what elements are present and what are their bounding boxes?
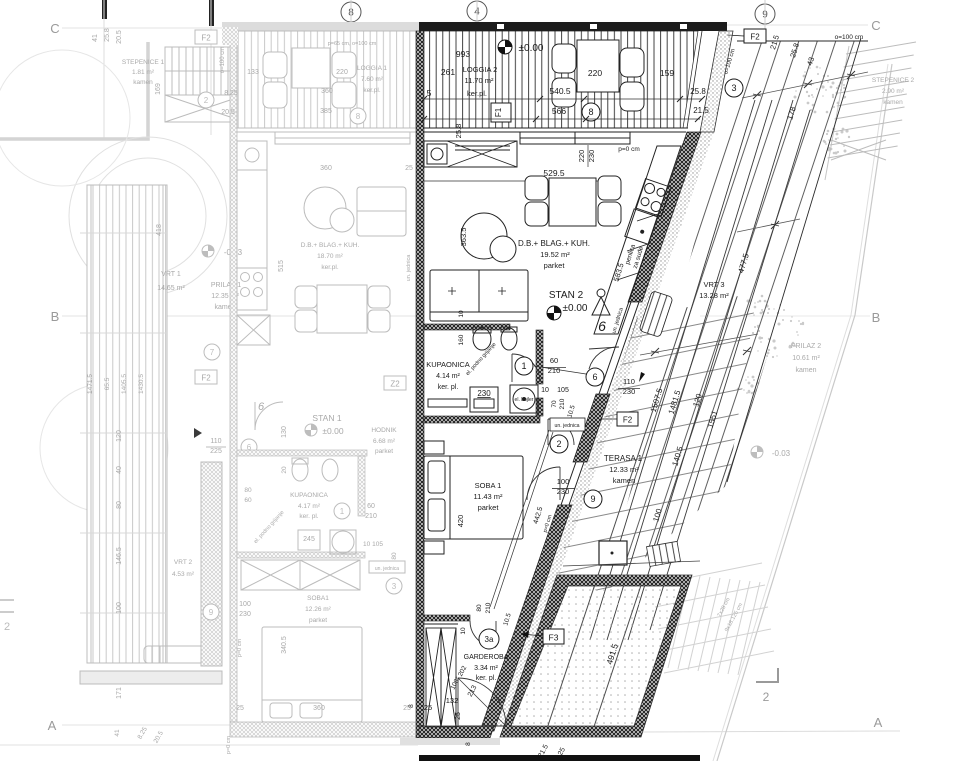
svg-text:225: 225: [210, 448, 222, 455]
svg-text:F1: F1: [494, 107, 503, 117]
svg-text:10: 10: [460, 627, 467, 635]
svg-text:STEPENICE 1: STEPENICE 1: [122, 59, 165, 66]
svg-text:kamen: kamen: [883, 99, 903, 106]
svg-text:1471.5: 1471.5: [87, 374, 94, 394]
svg-text:6: 6: [258, 401, 265, 413]
svg-text:GARDEROBA: GARDEROBA: [464, 654, 509, 661]
svg-text:360: 360: [321, 88, 333, 95]
svg-text:ker. pl.: ker. pl.: [476, 675, 497, 682]
svg-text:VRT 3: VRT 3: [704, 280, 725, 289]
svg-text:ker.pl.: ker.pl.: [321, 264, 339, 271]
svg-text:kamen: kamen: [133, 79, 153, 86]
svg-text:8: 8: [465, 742, 472, 746]
svg-text:p=0 cm: p=0 cm: [237, 638, 243, 657]
svg-text:±0.00: ±0.00: [563, 303, 588, 314]
svg-text:6.68 m²: 6.68 m²: [373, 438, 396, 445]
svg-text:un. jednica: un. jednica: [554, 423, 579, 429]
svg-text:parket: parket: [309, 617, 327, 624]
svg-text:1: 1: [340, 507, 345, 516]
svg-text:4.14 m²: 4.14 m²: [436, 373, 460, 380]
svg-text:993: 993: [456, 49, 470, 59]
svg-text:385: 385: [320, 108, 332, 115]
svg-text:ker. pl.: ker. pl.: [438, 384, 459, 391]
svg-text:o=100 cm: o=100 cm: [220, 47, 226, 74]
svg-text:20.5: 20.5: [116, 30, 123, 44]
svg-text:4.53 m²: 4.53 m²: [172, 571, 195, 578]
svg-text:SOBA 1: SOBA 1: [475, 481, 502, 490]
svg-text:10: 10: [458, 310, 465, 318]
svg-text:65.5: 65.5: [104, 377, 111, 390]
svg-text:159: 159: [660, 68, 674, 78]
svg-text:LOGGIA 1: LOGGIA 1: [357, 65, 387, 72]
svg-text:220: 220: [577, 150, 586, 163]
svg-text:ker.pl.: ker.pl.: [467, 89, 487, 98]
svg-text:540.5: 540.5: [549, 86, 571, 96]
svg-text:F2: F2: [201, 374, 211, 383]
svg-text:2: 2: [763, 690, 770, 704]
svg-text:9: 9: [209, 608, 214, 617]
svg-text:40: 40: [116, 466, 123, 474]
svg-text:12.33 m²: 12.33 m²: [609, 465, 639, 474]
svg-text:80: 80: [476, 604, 483, 612]
svg-text:13.28 m²: 13.28 m²: [699, 291, 729, 300]
svg-text:B: B: [872, 310, 881, 325]
svg-text:146.5: 146.5: [116, 547, 123, 565]
svg-text:60: 60: [244, 497, 252, 504]
svg-text:110: 110: [210, 438, 221, 445]
svg-text:19.52 m²: 19.52 m²: [540, 250, 570, 259]
svg-text:±0.00: ±0.00: [322, 426, 343, 436]
svg-text:360: 360: [313, 705, 325, 712]
svg-text:2: 2: [204, 96, 209, 105]
svg-text:12.26 m²: 12.26 m²: [305, 606, 331, 613]
svg-text:A: A: [48, 718, 57, 733]
svg-text:TERASA 1: TERASA 1: [604, 454, 643, 463]
svg-text:10 105: 10 105: [363, 541, 383, 548]
svg-text:A: A: [874, 715, 883, 730]
svg-text:1405.5: 1405.5: [121, 374, 128, 394]
svg-text:11.70 m²: 11.70 m²: [464, 76, 494, 85]
svg-text:parket: parket: [544, 261, 566, 270]
svg-text:2.90 m²: 2.90 m²: [882, 88, 905, 95]
svg-text:Z2: Z2: [390, 380, 400, 389]
svg-text:ker.pl.: ker.pl.: [363, 87, 381, 94]
svg-text:parket: parket: [478, 503, 500, 512]
svg-text:25: 25: [236, 705, 244, 712]
svg-text:60: 60: [367, 503, 375, 510]
svg-text:1.81 m²: 1.81 m²: [132, 69, 155, 76]
svg-text:10: 10: [541, 387, 549, 394]
svg-text:210: 210: [365, 513, 377, 520]
svg-text:D.B.+ BLAG.+ KUH.: D.B.+ BLAG.+ KUH.: [301, 242, 360, 249]
svg-text:B: B: [51, 309, 60, 324]
svg-text:110: 110: [623, 377, 635, 386]
svg-text:515: 515: [278, 260, 285, 272]
svg-text:6: 6: [592, 372, 597, 382]
svg-text:F2: F2: [623, 416, 633, 425]
svg-text:230: 230: [477, 389, 491, 398]
svg-text:100: 100: [557, 477, 570, 486]
svg-text:±0.00: ±0.00: [519, 43, 544, 54]
svg-text:7: 7: [210, 348, 215, 357]
svg-text:41: 41: [114, 729, 121, 737]
svg-text:171: 171: [116, 687, 123, 699]
svg-text:8: 8: [356, 112, 361, 121]
svg-text:STAN 2: STAN 2: [549, 290, 584, 301]
svg-text:un. jednica: un. jednica: [375, 566, 399, 572]
svg-text:STEPENICE 2: STEPENICE 2: [872, 77, 915, 84]
svg-text:C: C: [50, 21, 59, 36]
svg-text:100: 100: [239, 601, 251, 608]
svg-text:HODNIK: HODNIK: [371, 427, 397, 434]
svg-text:8: 8: [588, 107, 593, 117]
svg-text:230: 230: [239, 611, 251, 618]
svg-text:363.5: 363.5: [459, 228, 468, 247]
svg-text:1430.5: 1430.5: [138, 374, 145, 394]
svg-text:132: 132: [446, 696, 459, 705]
svg-text:25.8: 25.8: [454, 124, 463, 139]
svg-text:o=100 cm: o=100 cm: [835, 34, 864, 41]
svg-text:420: 420: [456, 515, 465, 528]
svg-text:kamen: kamen: [795, 367, 816, 374]
svg-text:kamen: kamen: [613, 476, 636, 485]
svg-text:340.5: 340.5: [281, 636, 288, 654]
svg-text:F2: F2: [750, 33, 760, 42]
svg-text:20.5: 20.5: [221, 109, 235, 116]
svg-text:9: 9: [590, 494, 595, 504]
svg-text:360: 360: [320, 165, 332, 172]
svg-text:1: 1: [521, 361, 526, 371]
svg-text:3: 3: [392, 582, 397, 591]
svg-text:p=0 cm: p=0 cm: [226, 735, 232, 754]
svg-text:25: 25: [405, 165, 413, 172]
svg-text:11.43 m²: 11.43 m²: [473, 492, 503, 501]
svg-text:3a: 3a: [485, 635, 494, 644]
svg-text:70: 70: [551, 400, 558, 408]
svg-text:14.65 m²: 14.65 m²: [157, 285, 185, 292]
svg-text:parket: parket: [375, 448, 393, 455]
svg-text:6: 6: [598, 318, 606, 334]
svg-text:80: 80: [244, 487, 252, 494]
svg-text:18.70 m²: 18.70 m²: [317, 253, 343, 260]
svg-text:220: 220: [588, 68, 602, 78]
svg-text:25: 25: [455, 712, 462, 720]
svg-text:25.8: 25.8: [690, 87, 706, 96]
svg-text:VRT 2: VRT 2: [174, 559, 193, 566]
svg-text:p=0 cm: p=0 cm: [618, 146, 640, 153]
svg-text:261: 261: [441, 67, 455, 77]
svg-text:130: 130: [281, 426, 288, 438]
svg-text:169: 169: [155, 83, 162, 95]
svg-text:25.8: 25.8: [104, 28, 111, 42]
svg-text:SOBA1: SOBA1: [307, 595, 329, 602]
svg-text:3.34 m²: 3.34 m²: [474, 665, 498, 672]
svg-text:KUPAONICA: KUPAONICA: [290, 492, 328, 499]
svg-text:41: 41: [92, 34, 99, 42]
svg-text:4.17 m²: 4.17 m²: [298, 503, 321, 510]
svg-text:418: 418: [156, 224, 163, 236]
svg-text:245: 245: [303, 536, 315, 543]
svg-text:8.25: 8.25: [224, 90, 238, 97]
svg-text:2: 2: [556, 439, 561, 449]
svg-text:F3: F3: [549, 633, 559, 643]
svg-text:ker. pl.: ker. pl.: [299, 513, 318, 520]
svg-text:el. bojler: el. bojler: [515, 397, 534, 403]
svg-text:KUPAONICA: KUPAONICA: [426, 360, 470, 369]
svg-text:10.61 m²: 10.61 m²: [792, 355, 820, 362]
svg-text:8: 8: [408, 704, 415, 708]
svg-text:160: 160: [458, 334, 465, 345]
svg-text:VRT 1: VRT 1: [161, 271, 181, 278]
svg-text:25: 25: [424, 703, 432, 712]
svg-text:2: 2: [4, 621, 10, 633]
svg-text:3: 3: [731, 83, 736, 93]
svg-text:STAN 1: STAN 1: [312, 413, 341, 423]
svg-text:133: 133: [247, 69, 259, 76]
svg-text:5: 5: [427, 88, 432, 98]
svg-text:120: 120: [116, 430, 123, 442]
svg-text:80: 80: [116, 501, 123, 509]
svg-text:566: 566: [552, 106, 566, 116]
svg-text:100: 100: [116, 602, 123, 614]
svg-text:105: 105: [557, 387, 569, 394]
svg-text:80: 80: [391, 552, 398, 560]
svg-text:F2: F2: [201, 34, 211, 43]
svg-text:un. jednica: un. jednica: [406, 254, 412, 282]
svg-text:60: 60: [550, 356, 558, 365]
svg-text:529.5: 529.5: [543, 168, 565, 178]
svg-text:LOGGIA 2: LOGGIA 2: [463, 65, 498, 74]
svg-text:-0.03: -0.03: [772, 449, 791, 458]
svg-text:20: 20: [281, 466, 288, 474]
svg-text:D.B.+ BLAG.+ KUH.: D.B.+ BLAG.+ KUH.: [518, 239, 590, 248]
svg-text:210: 210: [559, 398, 566, 409]
svg-text:7.60 m²: 7.60 m²: [361, 76, 384, 83]
svg-text:p=65 cm, o=100 cm: p=65 cm, o=100 cm: [328, 41, 377, 47]
svg-text:C: C: [871, 18, 880, 33]
svg-text:220: 220: [336, 69, 348, 76]
